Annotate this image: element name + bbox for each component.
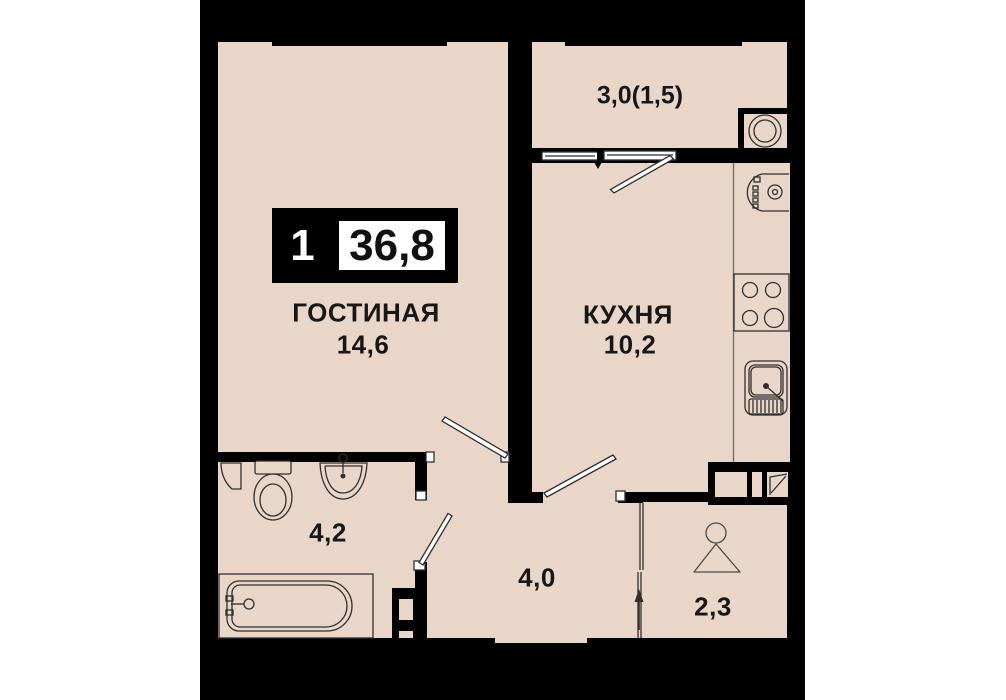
room-label-living-name: ГОСТИНАЯ [292, 298, 440, 329]
shaft-compartment-1 [715, 472, 747, 497]
room-label-balcony-area: 3,0(1,5) [597, 82, 683, 111]
badge-total-area: 36,8 [333, 215, 451, 276]
badge-room-count: 1 [272, 208, 333, 283]
room-label-living-area: 14,6 [337, 330, 390, 361]
room-label-kitchen-area: 10,2 [604, 330, 657, 361]
kitchen-door-opening [543, 492, 618, 503]
balcony-window [565, 42, 742, 46]
room-label-wardrobe-area: 2,3 [694, 592, 732, 623]
bathroom-duct-slot-1 [399, 599, 413, 620]
room-label-kitchen-name: КУХНЯ [583, 300, 673, 331]
washer-niche-wall-left [738, 108, 744, 152]
bathroom-door-opening [415, 500, 427, 562]
room-label-hallway-area: 4,0 [518, 563, 556, 594]
room-bathroom [218, 462, 415, 638]
bathroom-duct-slot-2 [399, 631, 413, 638]
floorplan-canvas: 1 36,8 3,0(1,5) ГОСТИНАЯ 14,6 КУХНЯ 10,2… [0, 0, 1006, 700]
shaft-compartment-3 [767, 472, 788, 497]
shaft-compartment-2 [752, 472, 762, 497]
washer-niche-wall-top [738, 108, 787, 114]
entrance-recess [495, 638, 587, 643]
living-window [272, 42, 447, 46]
room-label-bathroom-area: 4,2 [309, 518, 347, 549]
area-badge: 1 36,8 [272, 208, 458, 283]
room-kitchen-lower [532, 462, 708, 492]
living-door-opening [433, 452, 501, 462]
